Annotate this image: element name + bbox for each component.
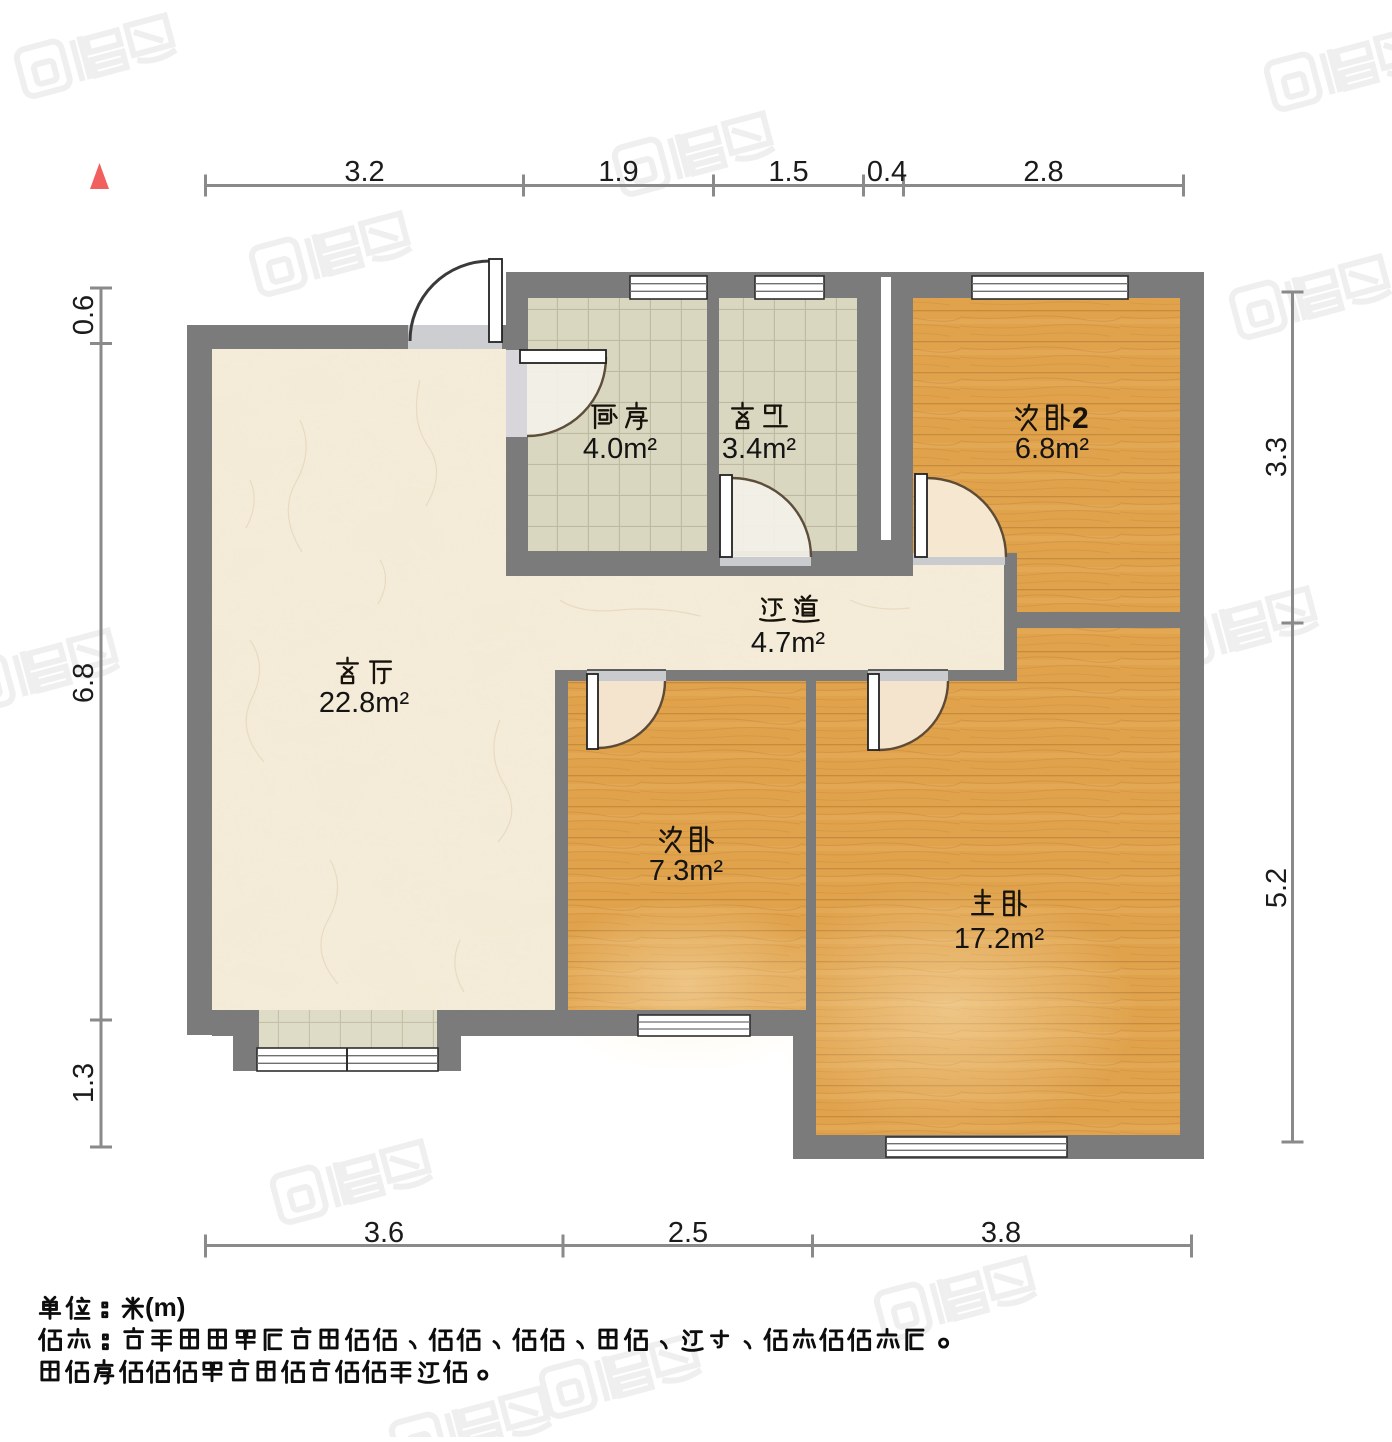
svg-text:0.6: 0.6 [68, 295, 100, 335]
svg-text:0.4: 0.4 [867, 156, 907, 188]
svg-text:3.3: 3.3 [1261, 437, 1293, 477]
svg-text:1.9: 1.9 [598, 156, 638, 188]
svg-text:3.2: 3.2 [344, 156, 384, 188]
svg-text:4.0m²: 4.0m² [583, 433, 657, 465]
svg-text:22.8m²: 22.8m² [319, 687, 410, 719]
svg-text:(m): (m) [145, 1292, 185, 1322]
svg-text:2.5: 2.5 [668, 1217, 708, 1249]
svg-text:2.8: 2.8 [1023, 156, 1063, 188]
svg-text:4.7m²: 4.7m² [751, 627, 825, 659]
svg-text:1.5: 1.5 [768, 156, 808, 188]
svg-text:17.2m²: 17.2m² [954, 923, 1045, 955]
svg-text:2: 2 [1072, 402, 1089, 435]
svg-text:3.6: 3.6 [364, 1217, 404, 1249]
svg-text:7.3m²: 7.3m² [649, 855, 723, 887]
svg-text:3.8: 3.8 [981, 1217, 1021, 1249]
svg-text:1.3: 1.3 [68, 1063, 100, 1103]
svg-text:6.8: 6.8 [68, 663, 100, 703]
svg-text:3.4m²: 3.4m² [722, 433, 796, 465]
svg-text:5.2: 5.2 [1261, 868, 1293, 908]
svg-text:6.8m²: 6.8m² [1015, 433, 1089, 465]
